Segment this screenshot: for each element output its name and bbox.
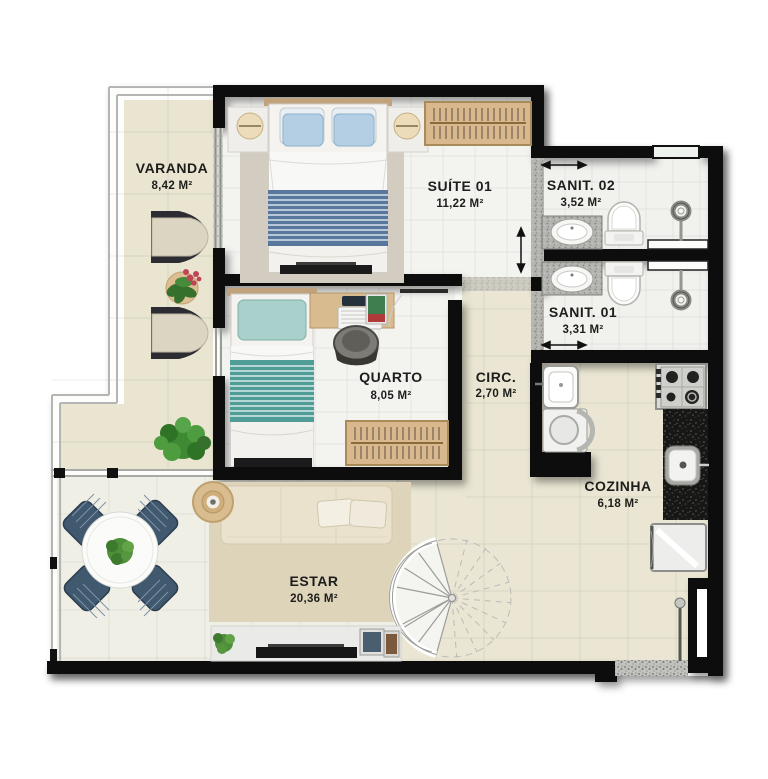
svg-text:QUARTO: QUARTO <box>359 369 422 385</box>
svg-text:ESTAR: ESTAR <box>290 573 339 589</box>
svg-text:3,31 M²: 3,31 M² <box>562 324 603 336</box>
svg-text:COZINHA: COZINHA <box>584 478 651 494</box>
svg-text:SANIT. 01: SANIT. 01 <box>549 304 617 320</box>
svg-text:20,36 M²: 20,36 M² <box>290 593 338 605</box>
svg-text:6,18 M²: 6,18 M² <box>597 498 638 510</box>
svg-text:SANIT. 02: SANIT. 02 <box>547 177 615 193</box>
svg-text:SUÍTE 01: SUÍTE 01 <box>428 178 493 194</box>
svg-text:3,52 M²: 3,52 M² <box>560 197 601 209</box>
svg-text:2,70 M²: 2,70 M² <box>475 388 516 400</box>
svg-text:8,05 M²: 8,05 M² <box>370 390 411 402</box>
svg-text:8,42 M²: 8,42 M² <box>151 180 192 192</box>
svg-text:CIRC.: CIRC. <box>476 369 517 385</box>
svg-text:VARANDA: VARANDA <box>136 160 208 176</box>
svg-text:11,22 M²: 11,22 M² <box>436 198 483 210</box>
